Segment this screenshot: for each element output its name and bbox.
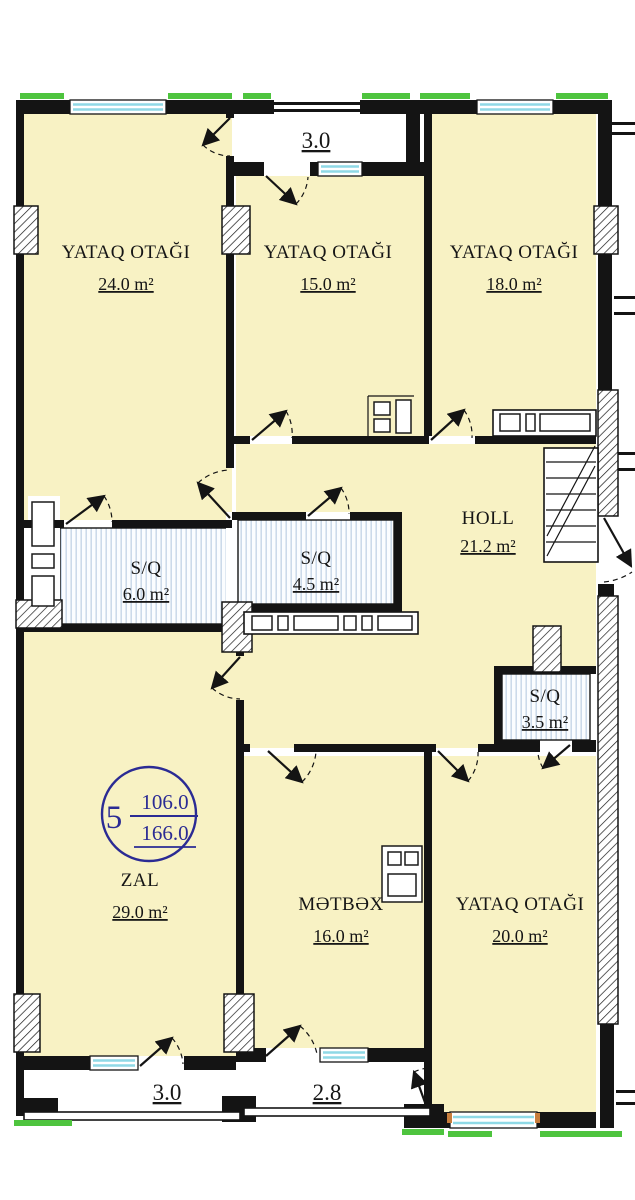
unit-number: 5 [106, 800, 123, 836]
floor-plan-drawing: 5 106.0 166.0 YATAQ OTAĞI 24.0 m² YATAQ … [0, 0, 635, 1200]
bathroom-2-name: S/Q [300, 548, 331, 569]
window-kitchen [320, 1048, 368, 1062]
window-bedroom-4 [447, 1112, 540, 1128]
bedroom-2-name: YATAQ OTAĞI [264, 241, 393, 263]
staircase [544, 446, 598, 562]
bedroom-2-area: 15.0 m² [300, 274, 355, 294]
parapet-bottom-center [244, 1108, 430, 1116]
bedroom-1-area: 24.0 m² [98, 274, 153, 294]
window-bedroom-3 [477, 100, 553, 114]
bathroom-3-name: S/Q [529, 686, 560, 707]
parapet-bottom-left [24, 1112, 240, 1120]
balcony-top-value: 3.0 [302, 128, 331, 153]
bathroom-1-fixtures [32, 502, 54, 606]
living-name: ZAL [121, 870, 159, 891]
balcony-bottom-center-value: 2.8 [313, 1080, 342, 1105]
hall-cabinet [244, 612, 418, 634]
kitchen-stove [382, 846, 422, 902]
bedroom-4-name: YATAQ OTAĞI [456, 893, 585, 915]
balcony-bottom-left-value: 3.0 [153, 1080, 182, 1105]
floor-plan-page: 5 106.0 166.0 YATAQ OTAĞI 24.0 m² YATAQ … [0, 0, 635, 1200]
kitchen-name: MƏTBƏX [298, 894, 383, 915]
window-bedroom-1 [70, 100, 166, 114]
bedroom-3-area: 18.0 m² [486, 274, 541, 294]
window-bedroom-2 [318, 162, 362, 176]
bathroom-1-name: S/Q [130, 558, 161, 579]
window-living [90, 1056, 138, 1070]
hall-wardrobe [493, 410, 596, 436]
hall-area: 21.2 m² [460, 536, 515, 556]
unit-area-lower: 166.0 [141, 821, 188, 845]
unit-area-upper: 106.0 [141, 790, 188, 814]
hall-name: HOLL [462, 508, 515, 529]
room-bedroom-2-fill [236, 176, 424, 436]
bathroom-1-area: 6.0 m² [123, 584, 169, 604]
kitchen-area: 16.0 m² [313, 926, 368, 946]
bedroom-3-name: YATAQ OTAĞI [450, 241, 579, 263]
bedroom-4-area: 20.0 m² [492, 926, 547, 946]
bedroom-1-name: YATAQ OTAĞI [62, 241, 191, 263]
room-living-fill [24, 632, 236, 1056]
bathroom-2-area: 4.5 m² [293, 574, 339, 594]
room-bedroom-1-fill [24, 114, 232, 520]
living-area: 29.0 m² [112, 902, 167, 922]
bathroom-3-area: 3.5 m² [522, 712, 568, 732]
